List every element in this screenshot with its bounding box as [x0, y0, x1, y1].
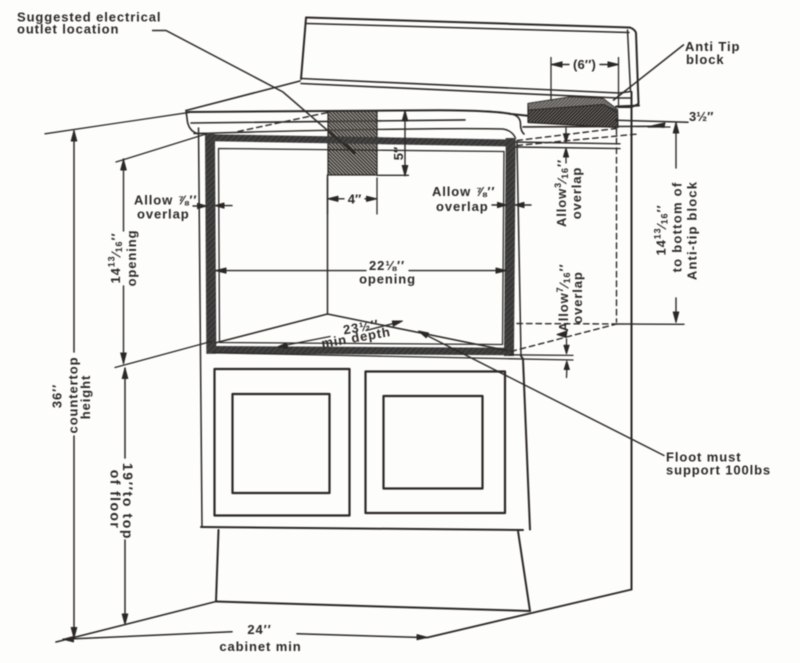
svg-text:24′′: 24′′	[247, 622, 271, 637]
svg-text:outlet location: outlet location	[17, 22, 119, 37]
svg-text:1413⁄16′′: 1413⁄16′′	[653, 204, 670, 255]
svg-text:5′′: 5′′	[391, 147, 406, 160]
svg-text:overlap: overlap	[569, 167, 584, 220]
svg-text:Allow3⁄16′′: Allow3⁄16′′	[553, 159, 570, 227]
svg-text:36′′: 36′′	[50, 384, 65, 408]
svg-text:(6′′): (6′′)	[573, 57, 596, 72]
svg-text:overlap: overlap	[436, 199, 489, 214]
svg-text:overlap: overlap	[137, 207, 190, 222]
svg-text:Allow ⅞′′: Allow ⅞′′	[432, 184, 495, 199]
svg-text:support 100lbs: support 100lbs	[666, 463, 771, 478]
svg-text:Allow ⅞′′: Allow ⅞′′	[134, 193, 197, 208]
svg-text:3½′′: 3½′′	[689, 109, 713, 124]
svg-text:opening: opening	[359, 272, 416, 287]
svg-text:cabinet min: cabinet min	[219, 639, 301, 654]
svg-text:4′′: 4′′	[348, 192, 361, 207]
svg-text:of floor: of floor	[108, 470, 124, 529]
svg-text:overlap: overlap	[570, 271, 585, 324]
svg-text:1413⁄16′′: 1413⁄16′′	[107, 232, 125, 283]
svg-text:Anti-tip block: Anti-tip block	[685, 181, 700, 280]
svg-text:height: height	[78, 375, 93, 419]
svg-text:block: block	[686, 52, 724, 67]
svg-text:to bottom of: to bottom of	[670, 182, 685, 273]
svg-text:opening: opening	[124, 230, 139, 287]
